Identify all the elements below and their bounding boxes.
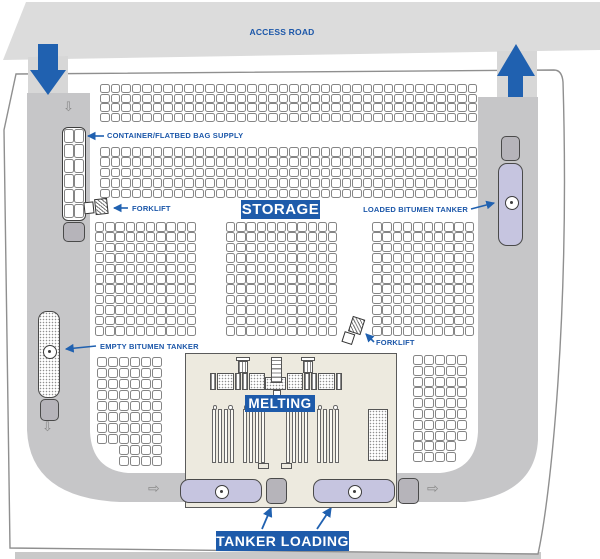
pallet-cell — [373, 168, 383, 178]
pallet-cell — [384, 147, 394, 157]
pallet-cell — [226, 326, 235, 336]
pallet-cell — [237, 113, 247, 122]
pallet-cell — [434, 243, 444, 253]
pallet-cell — [141, 456, 151, 466]
pallet-cell — [277, 243, 286, 253]
pallet-cell — [457, 398, 467, 408]
pallet-cell — [413, 284, 423, 294]
pallet-cell — [119, 368, 129, 378]
pallet-cell — [258, 189, 268, 199]
pallet-cell — [382, 274, 392, 284]
pallet-cell — [119, 357, 129, 367]
pallet-cell — [446, 377, 456, 387]
pallet-cell — [100, 157, 110, 167]
pallet-cell — [342, 113, 352, 122]
pallet-cell — [111, 113, 121, 122]
pallet-cell — [174, 168, 184, 178]
pallet-cell — [352, 94, 362, 103]
pallet-cell — [436, 147, 446, 157]
pallet-cell — [465, 295, 475, 305]
pallet-cell — [166, 305, 175, 315]
pallet-cell — [136, 274, 145, 284]
pallet-cell — [403, 253, 413, 263]
pallet-cell — [424, 441, 434, 451]
pallet-cell — [300, 168, 310, 178]
melting-zone-label: MELTING — [245, 395, 315, 412]
pallet-cell — [310, 168, 320, 178]
pallet-cell — [331, 113, 341, 122]
pallet-cell — [373, 189, 383, 199]
pallet-cell — [177, 253, 186, 263]
pallet-cell — [328, 253, 337, 263]
pallet-cell — [342, 157, 352, 167]
pallet-cell — [457, 103, 467, 112]
pallet-cell — [435, 366, 445, 376]
pallet-cell — [174, 103, 184, 112]
pallet-cell — [95, 274, 104, 284]
pallet-cell — [136, 222, 145, 232]
pallet-cell — [130, 412, 140, 422]
pallet-cell — [166, 253, 175, 263]
pallet-cell — [247, 168, 257, 178]
pallet-cell — [115, 274, 124, 284]
pallet-cell — [152, 434, 162, 444]
pallet-cell — [382, 305, 392, 315]
pallet-cell — [184, 113, 194, 122]
pallet-cell — [424, 284, 434, 294]
pallet-cell — [237, 147, 247, 157]
pallet-cell — [321, 84, 331, 93]
melter-unit — [249, 373, 265, 390]
tank-bar — [304, 409, 308, 463]
pallet-cell — [97, 379, 107, 389]
pallet-cell — [457, 409, 467, 419]
pallet-cell — [146, 222, 155, 232]
pallet-cell — [247, 113, 257, 122]
pallet-cell — [413, 355, 423, 365]
pallet-cell — [279, 178, 289, 188]
pallet-cell — [279, 103, 289, 112]
forklift-fork — [83, 201, 94, 214]
tank-bar — [249, 409, 253, 463]
pallet-cell — [132, 178, 142, 188]
pallet-cell — [300, 113, 310, 122]
pallet-cell — [152, 412, 162, 422]
pallet-cell — [115, 326, 124, 336]
pallet-cell — [447, 103, 457, 112]
pallet-cell — [136, 305, 145, 315]
pallet-cell — [95, 295, 104, 305]
pallet-cell — [108, 401, 118, 411]
pallet-cell — [268, 113, 278, 122]
pallet-cell — [331, 157, 341, 167]
pallet-cell — [457, 189, 467, 199]
pallet-cell — [393, 264, 403, 274]
pallet-cell — [454, 295, 464, 305]
pallet-cell — [187, 274, 196, 284]
pallet-cell — [153, 147, 163, 157]
pallet-cell — [372, 316, 382, 326]
pallet-cell — [287, 243, 296, 253]
pallet-cell — [310, 147, 320, 157]
pallet-cell — [287, 284, 296, 294]
pallet-cell — [300, 94, 310, 103]
pallet-cell — [382, 222, 392, 232]
pallet-cell — [413, 409, 423, 419]
pallet-cell — [268, 84, 278, 93]
pallet-cell — [126, 305, 135, 315]
pallet-cell — [141, 357, 151, 367]
pallet-cell — [424, 387, 434, 397]
pallet-cell — [195, 178, 205, 188]
tank-valve-icon — [228, 405, 233, 410]
pallet-cell — [100, 168, 110, 178]
flow-down-icon: ⇩ — [63, 101, 74, 114]
pallet-cell — [403, 274, 413, 284]
pallet-cell — [226, 168, 236, 178]
pallet-cell — [328, 222, 337, 232]
pallet-cell — [257, 295, 266, 305]
pallet-cell — [447, 178, 457, 188]
pallet-cell — [363, 147, 373, 157]
pallet-cell — [132, 103, 142, 112]
pallet-cell — [130, 445, 140, 455]
pallet-cell — [126, 326, 135, 336]
tank-bar — [323, 409, 327, 463]
pallet-cell — [436, 94, 446, 103]
pallet-cell — [318, 243, 327, 253]
loaded-tanker-label: LOADED BITUMEN TANKER — [360, 205, 468, 214]
pallet-cell — [465, 274, 475, 284]
pallet-cell — [328, 284, 337, 294]
pallet-cell — [434, 295, 444, 305]
pallet-cell — [465, 243, 475, 253]
pallet-cell — [297, 243, 306, 253]
pallet-cell — [426, 178, 436, 188]
pallet-cell — [108, 379, 118, 389]
pallet-cell — [287, 305, 296, 315]
pallet-cell — [267, 222, 276, 232]
pallet-cell — [111, 178, 121, 188]
pallet-cell — [146, 316, 155, 326]
pallet-cell — [111, 103, 121, 112]
pallet-cell — [166, 274, 175, 284]
pallet-cell — [372, 232, 382, 242]
pallet-cell — [444, 253, 454, 263]
pallet-cell — [300, 178, 310, 188]
pallet-cell — [95, 326, 104, 336]
pallet-cell — [446, 366, 456, 376]
forklift-fork — [341, 331, 355, 345]
pallet-cell — [121, 103, 131, 112]
pallet-cell — [97, 357, 107, 367]
pallet-cell — [166, 243, 175, 253]
pallet-cell — [426, 103, 436, 112]
pallet-cell — [258, 84, 268, 93]
pallet-cell — [393, 316, 403, 326]
pallet-cell — [468, 178, 478, 188]
pallet-cell — [205, 147, 215, 157]
pallet-cell — [405, 113, 415, 122]
pallet-cell — [258, 103, 268, 112]
pallet-cell — [177, 326, 186, 336]
pallet-cell — [308, 264, 317, 274]
pallet-cell — [328, 274, 337, 284]
pallet-cell — [97, 423, 107, 433]
pallet-cell — [454, 326, 464, 336]
pallet-cell — [115, 295, 124, 305]
pallet-cell — [267, 284, 276, 294]
vent-pipe — [238, 361, 248, 373]
bitumen-tank-group — [317, 409, 339, 463]
pallet-cell — [403, 295, 413, 305]
pallet-cell — [126, 274, 135, 284]
pallet-cell — [373, 157, 383, 167]
pallet-cell — [403, 326, 413, 336]
pallet-cell — [308, 222, 317, 232]
pallet-cell — [393, 243, 403, 253]
pallet-cell — [95, 264, 104, 274]
empty-tanker-port-icon — [43, 345, 57, 359]
pallet-cell — [97, 434, 107, 444]
pallet-cell — [184, 157, 194, 167]
pallet-cell — [247, 84, 257, 93]
pallet-cell — [163, 168, 173, 178]
pallet-cell — [105, 284, 114, 294]
pallet-cell — [121, 84, 131, 93]
pallet-cell — [156, 253, 165, 263]
pallet-cell — [121, 94, 131, 103]
pallet-cell — [363, 103, 373, 112]
pallet-cell — [444, 326, 454, 336]
pallet-cell — [277, 316, 286, 326]
pallet-cell — [142, 168, 152, 178]
tank-bar — [243, 409, 247, 463]
pallet-cell — [328, 243, 337, 253]
pallet-cell — [279, 113, 289, 122]
pallet-cell — [434, 232, 444, 242]
pallet-cell — [393, 295, 403, 305]
pallet-cell — [424, 409, 434, 419]
pallet-cell — [130, 401, 140, 411]
pallet-cell — [258, 178, 268, 188]
pallet-cell — [446, 431, 456, 441]
pallet-cell — [184, 168, 194, 178]
pallet-cell — [297, 316, 306, 326]
pallet-cell — [435, 377, 445, 387]
pallet-cell — [177, 284, 186, 294]
pallet-cell — [95, 232, 104, 242]
pallet-cell — [318, 222, 327, 232]
pallet-cell — [153, 94, 163, 103]
pallet-cell — [146, 295, 155, 305]
pallet-cell — [382, 316, 392, 326]
tank-bar — [261, 409, 265, 463]
pallet-cell — [468, 147, 478, 157]
pallet-cell — [247, 147, 257, 157]
melter-unit — [287, 373, 303, 390]
pallet-cell — [216, 178, 226, 188]
pallet-cell — [297, 264, 306, 274]
pallet-cell — [300, 157, 310, 167]
pallet-cell — [130, 379, 140, 389]
pallet-cell — [156, 295, 165, 305]
pallet-cell — [435, 420, 445, 430]
pallet-cell — [342, 147, 352, 157]
pallet-cell — [413, 420, 423, 430]
pallet-cell — [132, 84, 142, 93]
pallet-cell — [95, 316, 104, 326]
pallet-cell — [393, 274, 403, 284]
pallet-cell — [153, 157, 163, 167]
pallet-cell — [279, 147, 289, 157]
pallet-cell — [277, 232, 286, 242]
pallet-cell — [287, 295, 296, 305]
pallet-cell — [195, 168, 205, 178]
pallet-cell — [468, 157, 478, 167]
pallet-cell — [413, 232, 423, 242]
pallet-cell — [318, 326, 327, 336]
pallet-cell — [226, 243, 235, 253]
pallet-cell — [257, 222, 266, 232]
pallet-cell — [74, 174, 84, 188]
pallet-cell — [64, 174, 74, 188]
pallet-cell — [119, 412, 129, 422]
pallet-cell — [115, 316, 124, 326]
pallet-cell — [146, 264, 155, 274]
pallet-cell — [108, 390, 118, 400]
pallet-cell — [64, 189, 74, 203]
pallet-cell — [216, 157, 226, 167]
bitumen-tank-group — [243, 409, 265, 463]
pallet-cell — [247, 94, 257, 103]
pallet-cell — [95, 243, 104, 253]
melter-divider — [311, 373, 317, 390]
pallet-cell — [297, 305, 306, 315]
pallet-cell — [310, 178, 320, 188]
pallet-cell — [174, 157, 184, 167]
pallet-cell — [136, 243, 145, 253]
container-supply-label: CONTAINER/FLATBED BAG SUPPLY — [107, 131, 243, 140]
pallet-cell — [105, 326, 114, 336]
pallet-cell — [434, 253, 444, 263]
pallet-cell — [111, 189, 121, 199]
pallet-cell — [308, 243, 317, 253]
pallet-cell — [108, 423, 118, 433]
pallet-cell — [457, 113, 467, 122]
flow-right-icon: ⇨ — [427, 482, 439, 496]
pallet-cell — [434, 326, 444, 336]
pallet-cell — [382, 264, 392, 274]
pallet-cell — [321, 178, 331, 188]
pallet-cell — [97, 390, 107, 400]
pallet-cell — [257, 253, 266, 263]
pallet-cell — [436, 84, 446, 93]
pallet-cell — [372, 264, 382, 274]
pallet-cell — [352, 168, 362, 178]
pallet-cell — [166, 316, 175, 326]
pallet-cell — [100, 103, 110, 112]
pallet-cell — [331, 189, 341, 199]
pallet-cell — [424, 366, 434, 376]
pallet-cell — [363, 157, 373, 167]
pallet-cell — [405, 147, 415, 157]
pallet-cell — [163, 103, 173, 112]
pallet-cell — [268, 189, 278, 199]
pallet-cell — [318, 316, 327, 326]
pallet-cell — [413, 243, 423, 253]
pallet-cell — [342, 178, 352, 188]
pallet-cell — [382, 253, 392, 263]
pallet-cell — [121, 113, 131, 122]
pallet-cell — [226, 103, 236, 112]
pallet-cell — [236, 326, 245, 336]
pallet-cell — [226, 178, 236, 188]
pallet-cell — [111, 94, 121, 103]
pallet-cell — [308, 295, 317, 305]
pallet-cell — [126, 232, 135, 242]
pallet-cell — [236, 232, 245, 242]
pallet-cell — [277, 295, 286, 305]
pallet-cell — [394, 189, 404, 199]
pallet-cell — [216, 168, 226, 178]
pallet-cell — [446, 409, 456, 419]
pallet-cell — [136, 316, 145, 326]
pallet-cell — [289, 84, 299, 93]
pallet-cell — [95, 305, 104, 315]
pallet-cell — [74, 144, 84, 158]
forklift-upper-icon — [83, 198, 111, 219]
pallet-cell — [136, 253, 145, 263]
pallet-cell — [373, 113, 383, 122]
pallet-cell — [318, 305, 327, 315]
pallet-cell — [413, 441, 423, 451]
pallet-cell — [393, 326, 403, 336]
pallet-cell — [226, 295, 235, 305]
pallet-cell — [372, 284, 382, 294]
pallet-cell — [279, 189, 289, 199]
pallet-cell — [187, 222, 196, 232]
pallet-cell — [187, 264, 196, 274]
pallet-cell — [177, 232, 186, 242]
pallet-cell — [393, 253, 403, 263]
pallet-cell — [444, 222, 454, 232]
pallet-cell — [424, 222, 434, 232]
melter-divider — [235, 373, 241, 390]
pallet-cell — [373, 147, 383, 157]
pallet-cell — [289, 178, 299, 188]
pallet-cell — [74, 204, 84, 218]
pallet-cell — [372, 295, 382, 305]
pallet-cell — [184, 189, 194, 199]
pallet-cell — [267, 274, 276, 284]
pallet-cell — [152, 401, 162, 411]
pallet-cell — [126, 222, 135, 232]
pallet-cell — [64, 204, 74, 218]
pallet-cell — [308, 232, 317, 242]
pallet-cell — [352, 113, 362, 122]
pallet-cell — [226, 253, 235, 263]
pallet-cell — [457, 84, 467, 93]
pallet-cell — [152, 445, 162, 455]
pallet-cell — [142, 113, 152, 122]
pallet-cell — [247, 189, 257, 199]
pallet-cell — [174, 113, 184, 122]
pallet-cell — [436, 157, 446, 167]
pallet-cell — [100, 147, 110, 157]
tank-bar — [329, 409, 333, 463]
pallet-cell — [352, 178, 362, 188]
